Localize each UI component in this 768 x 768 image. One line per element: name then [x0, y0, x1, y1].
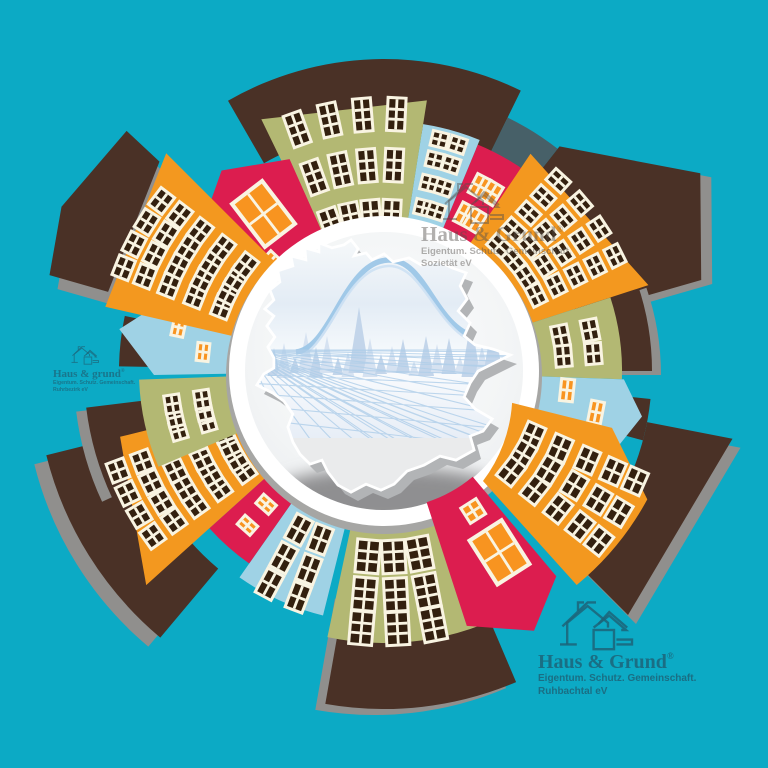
- svg-text:Eigentum. Schutz. Gemeinschaft: Eigentum. Schutz. Gemeinschaft.: [538, 673, 697, 684]
- svg-text:Haus & grund®: Haus & grund®: [53, 368, 125, 380]
- svg-text:Haus & Grund®: Haus & Grund®: [421, 222, 563, 246]
- svg-text:Haus & Grund®: Haus & Grund®: [538, 651, 674, 673]
- svg-text:Ruhbachtal eV: Ruhbachtal eV: [538, 686, 608, 697]
- svg-text:Eigentum. Schutz. Gemeinschaft: Eigentum. Schutz. Gemeinschaft.: [53, 380, 136, 386]
- svg-text:Ruhrbezirk eV: Ruhrbezirk eV: [53, 387, 88, 393]
- svg-text:Eigentum. Schutz. Gemeinschaft: Eigentum. Schutz. Gemeinschaft.: [421, 246, 571, 257]
- svg-text:Sozietät eV: Sozietät eV: [421, 258, 472, 269]
